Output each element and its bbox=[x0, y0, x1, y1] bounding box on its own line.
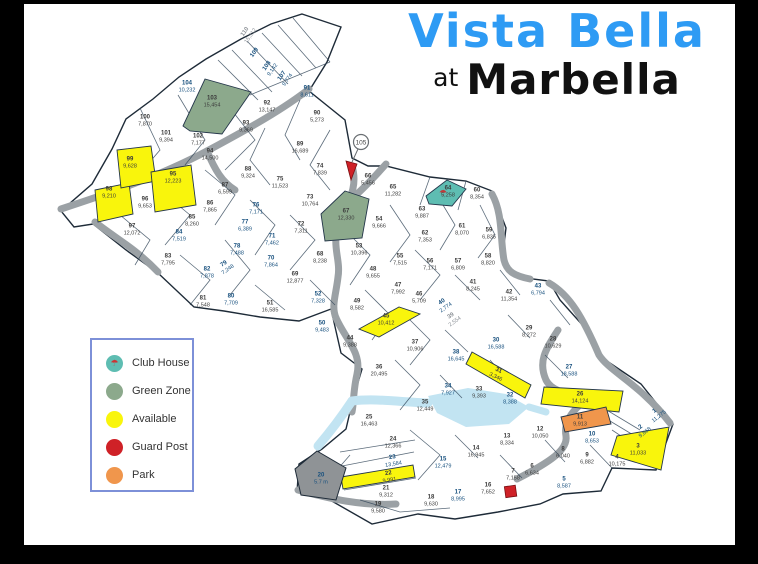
legend-item-guard-post: Guard Post bbox=[106, 433, 192, 461]
club-house-umbrella-icon: ☂ bbox=[439, 188, 447, 198]
guard-post-square bbox=[504, 485, 516, 497]
slide: ☂ 105 11015,3121091089,1421079,77410410,… bbox=[0, 0, 758, 564]
plot-103-patch bbox=[183, 79, 251, 134]
plot-99-patch bbox=[117, 146, 156, 188]
legend-item-available: Available bbox=[106, 405, 192, 433]
plot-98-patch bbox=[95, 183, 133, 222]
plot-11-patch bbox=[561, 407, 611, 432]
legend-item-club-house: ☂ Club House bbox=[106, 349, 192, 377]
legend-box: ☂ Club House Green Zone Available Guard … bbox=[90, 338, 194, 492]
plot-45-patch bbox=[359, 307, 420, 337]
club-house-swatch: ☂ bbox=[106, 355, 123, 372]
guard-post-swatch bbox=[106, 439, 123, 456]
legend-label: Guard Post bbox=[132, 441, 188, 453]
legend-label: Club House bbox=[132, 357, 189, 369]
legend-label: Park bbox=[132, 469, 155, 481]
plot-22-patch bbox=[341, 465, 415, 489]
legend-item-park: Park bbox=[106, 461, 192, 489]
legend-label: Green Zone bbox=[132, 385, 191, 397]
green-zone-swatch bbox=[106, 383, 123, 400]
plot-95-patch bbox=[151, 165, 196, 212]
available-swatch bbox=[106, 411, 123, 428]
legend-item-green-zone: Green Zone bbox=[106, 377, 192, 405]
water-stream bbox=[318, 388, 546, 446]
legend-label: Available bbox=[132, 413, 176, 425]
plot-20-patch bbox=[295, 451, 346, 500]
park-swatch bbox=[106, 467, 123, 484]
plot-26-patch bbox=[541, 387, 623, 412]
guard-node-label: 105 bbox=[356, 140, 367, 147]
plot-3-patch bbox=[611, 427, 669, 470]
plot-67-patch bbox=[321, 191, 369, 241]
